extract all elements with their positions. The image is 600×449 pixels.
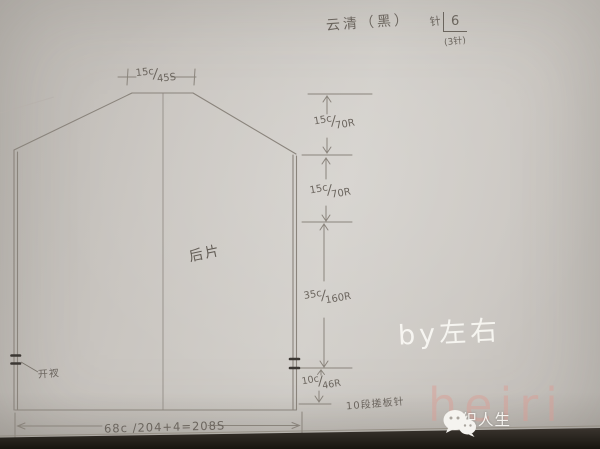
photo-bottom-edge (0, 0, 600, 449)
site-logo: 编织人生 (441, 408, 511, 430)
paper-photo: 云清（黑） 针 6 (3针) 15c/45S 15c/70R 15c/70R 3… (0, 0, 600, 449)
chat-bubbles-icon (441, 408, 477, 438)
